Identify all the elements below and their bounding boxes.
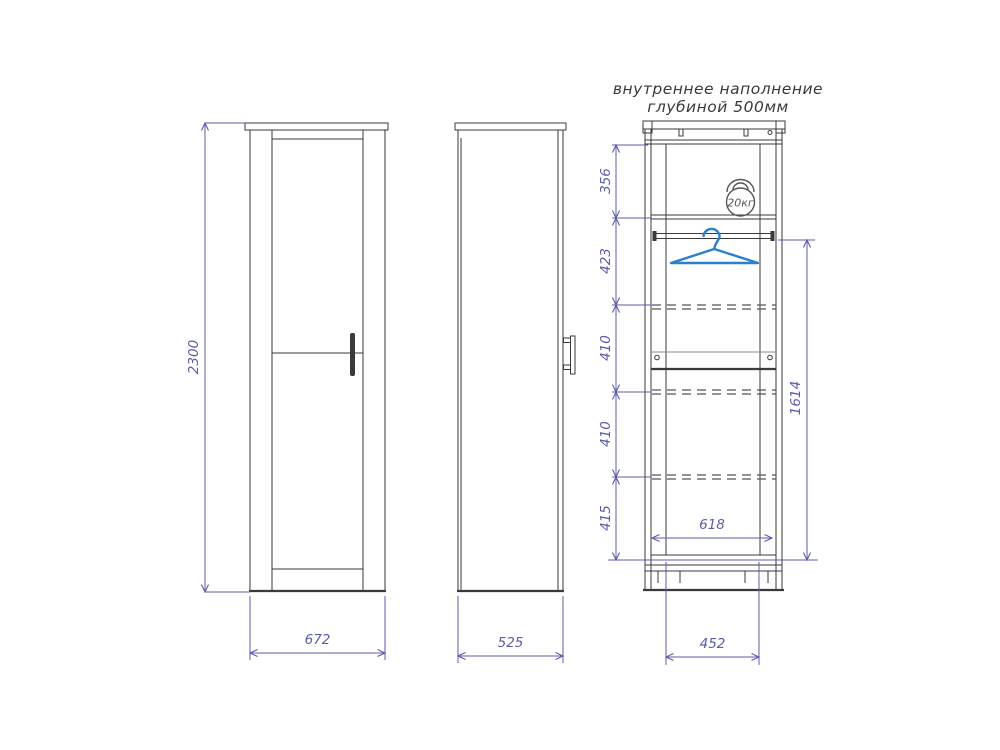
title-line-1: внутреннее наполнение (613, 80, 823, 98)
side-handle-bar (571, 336, 576, 374)
upper-shelf (651, 215, 776, 219)
adjustable-shelf-line-2 (652, 390, 776, 394)
kettlebell-label: 20кг (727, 197, 754, 210)
kettlebell-handle-outer (727, 180, 754, 193)
hanger-body (671, 249, 758, 263)
dim-415-label: 415 (598, 505, 614, 531)
door-handle (350, 333, 355, 376)
shelf-pin-left (655, 355, 660, 360)
dim-672-extension-lines (250, 596, 385, 660)
dim-width-672: 672 (250, 596, 385, 660)
side-top-panel (455, 123, 566, 130)
dim-410a-label: 410 (598, 335, 614, 361)
rod-bracket-right (771, 231, 775, 241)
dim-525-extension-lines (458, 596, 563, 663)
dim-525-label: 525 (498, 635, 524, 651)
top-panel-end-right (776, 121, 785, 133)
side-handle-top-stub (564, 338, 571, 343)
plinth-feet (658, 571, 768, 583)
door-frame-lines (272, 130, 363, 591)
hinge-tab-right (744, 129, 748, 136)
dim-672-label: 672 (305, 632, 331, 648)
drawing-title: внутреннее наполнение глубиной 500мм (613, 80, 823, 116)
fitting-hole (768, 131, 772, 135)
drawing-canvas: внутреннее наполнение глубиной 500мм (0, 0, 1000, 750)
internal-top-rail (645, 140, 782, 144)
front-view (245, 123, 388, 591)
side-handle (564, 336, 576, 374)
clothes-hanger-icon (671, 229, 758, 263)
dim-356-label: 356 (598, 168, 614, 194)
adjustable-shelf-line-1 (652, 305, 776, 309)
dim-2300-extension-lines (205, 123, 250, 592)
shelf-pin-right (768, 355, 773, 360)
dim-depth-525: 525 (458, 596, 563, 663)
side-handle-bottom-stub (564, 365, 571, 370)
dim-inner-width-618: 618 (652, 517, 772, 538)
rod-bracket-left (653, 231, 657, 241)
side-body-lines (458, 130, 563, 591)
dimensions: 2300 672 525 356 423 410 410 415 (186, 123, 818, 665)
dim-423-label: 423 (598, 248, 614, 274)
dim-618-label: 618 (699, 517, 725, 533)
hanger-rod (655, 234, 772, 239)
dim-452-label: 452 (700, 636, 726, 652)
side-view (455, 123, 575, 591)
dim-height-2300: 2300 (186, 123, 250, 592)
kettlebell-icon: 20кг (727, 180, 755, 217)
front-body-sides (250, 130, 385, 591)
title-line-2: глубиной 500мм (647, 98, 788, 116)
adjustable-shelf-line-3 (652, 475, 776, 479)
hinge-tab-left (679, 129, 683, 136)
dim-410b-label: 410 (598, 421, 614, 447)
dim-2300-label: 2300 (186, 340, 202, 374)
front-top-panel (245, 123, 388, 130)
dim-hanging-1614: 1614 (778, 240, 815, 560)
internal-top-panel (643, 121, 785, 129)
dim-1614-label: 1614 (788, 381, 804, 415)
